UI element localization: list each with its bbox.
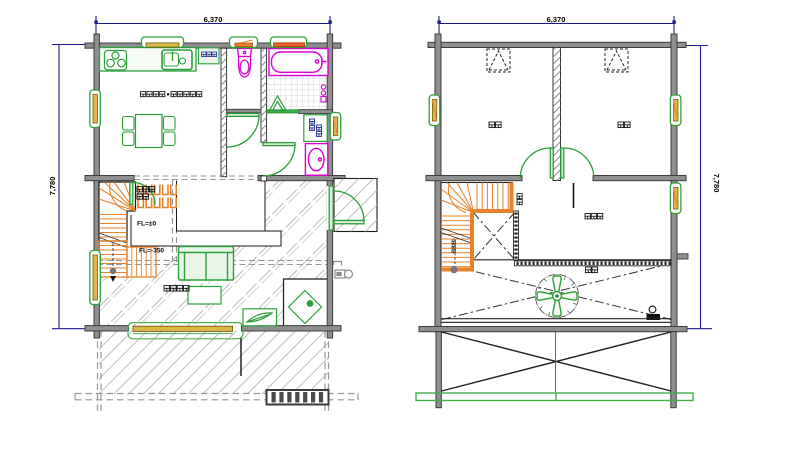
- svg-text:FL=-350: FL=-350: [139, 248, 164, 255]
- svg-text:7,780: 7,780: [48, 177, 57, 196]
- svg-text:7,780: 7,780: [712, 174, 721, 193]
- svg-text:6,370: 6,370: [204, 15, 223, 24]
- svg-text:6,370: 6,370: [547, 15, 566, 24]
- svg-text:FL=±0: FL=±0: [137, 221, 157, 228]
